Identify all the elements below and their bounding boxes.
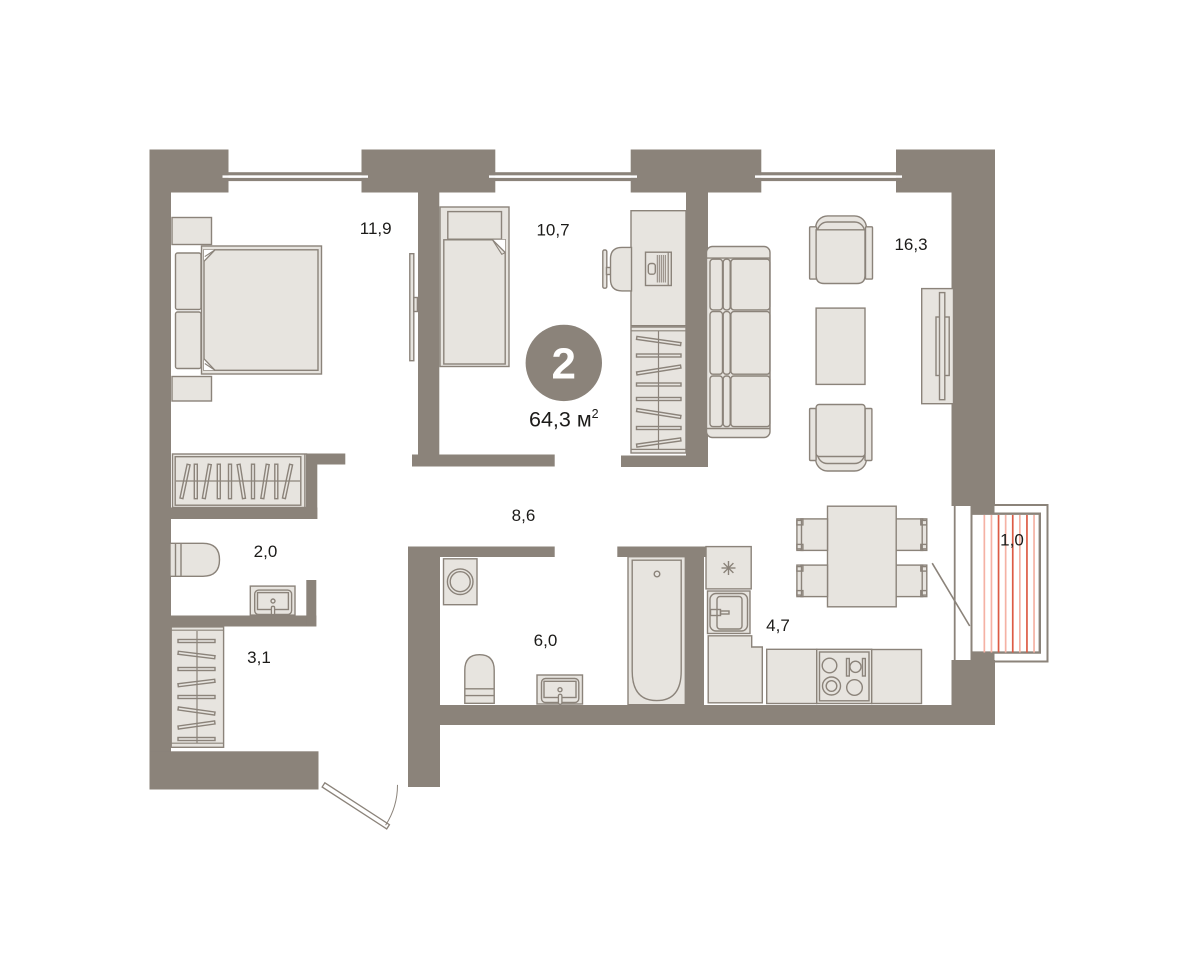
svg-text:2: 2 [552,340,576,389]
svg-text:11,9: 11,9 [360,219,392,238]
svg-text:2,0: 2,0 [254,542,278,561]
svg-text:3,1: 3,1 [247,648,271,667]
svg-text:8,6: 8,6 [512,506,536,525]
svg-text:6,0: 6,0 [534,631,558,650]
svg-text:16,3: 16,3 [894,235,927,254]
svg-text:1,0: 1,0 [1000,531,1024,550]
svg-text:64,3 м2: 64,3 м2 [529,407,599,432]
svg-text:10,7: 10,7 [536,221,569,240]
svg-text:4,7: 4,7 [766,616,790,635]
